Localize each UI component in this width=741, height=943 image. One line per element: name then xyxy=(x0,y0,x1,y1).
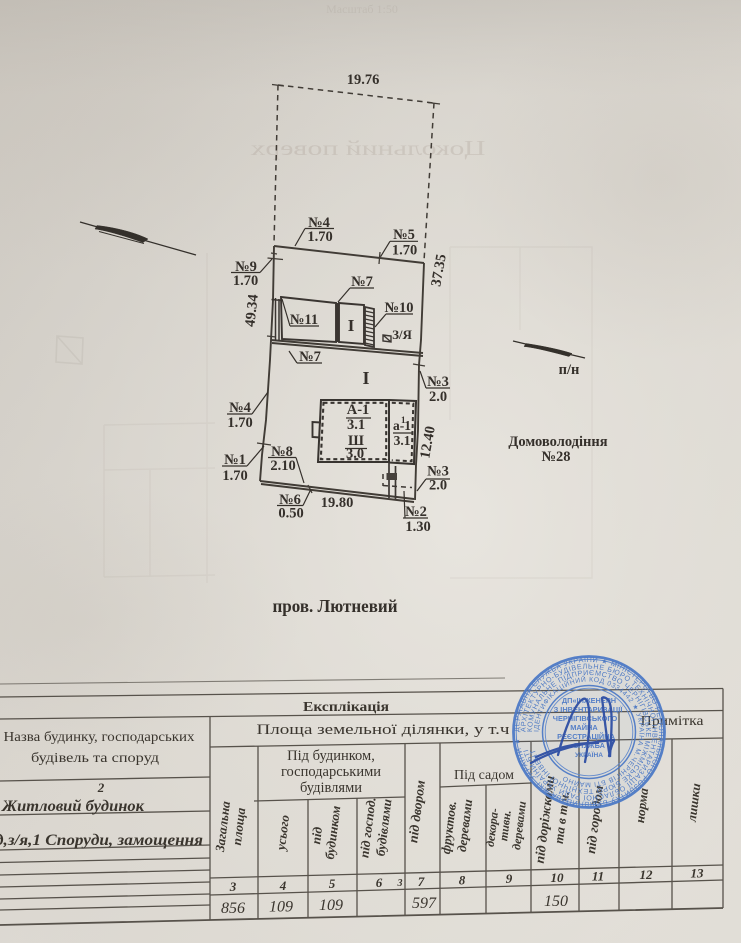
svg-text:13: 13 xyxy=(691,866,705,881)
svg-text:10: 10 xyxy=(551,870,565,885)
svg-text:8: 8 xyxy=(459,873,466,888)
svg-text:Експлікація: Експлікація xyxy=(303,700,389,715)
svg-text:господарськими: господарськими xyxy=(281,764,381,780)
svg-text:Житловий будинок: Житловий будинок xyxy=(1,798,145,815)
svg-text:4: 4 xyxy=(279,878,287,893)
svg-text:п/н: п/н xyxy=(559,362,580,378)
svg-text:1.70: 1.70 xyxy=(222,468,247,484)
svg-text:Цокольний поверх: Цокольний поверх xyxy=(250,136,486,160)
svg-text:1: 1 xyxy=(401,415,406,425)
svg-text:I: I xyxy=(362,368,369,388)
svg-text:3: 3 xyxy=(229,879,237,894)
svg-text:д,з/я,1 Споруди, замощення: д,з/я,1 Споруди, замощення xyxy=(0,832,203,849)
svg-text:А-1: А-1 xyxy=(347,402,370,418)
svg-text:будівель та споруд: будівель та споруд xyxy=(31,751,159,766)
svg-text:1.70: 1.70 xyxy=(392,243,417,259)
svg-text:З/Я: З/Я xyxy=(392,327,412,342)
svg-text:Під садом: Під садом xyxy=(454,768,514,783)
svg-text:2.10: 2.10 xyxy=(270,458,295,474)
svg-text:49.34: 49.34 xyxy=(242,294,261,328)
svg-text:11: 11 xyxy=(592,869,604,884)
svg-text:9: 9 xyxy=(506,871,513,886)
svg-text:12: 12 xyxy=(640,867,654,882)
svg-text:597: 597 xyxy=(412,895,437,912)
svg-text:856: 856 xyxy=(221,900,245,917)
svg-text:будівлями: будівлями xyxy=(300,780,362,796)
svg-text:3.1: 3.1 xyxy=(394,433,411,448)
svg-text:під: під xyxy=(308,825,325,845)
svg-text:пров. Лютневий: пров. Лютневий xyxy=(273,596,398,616)
svg-text:№28: №28 xyxy=(541,449,570,465)
svg-text:ЧЕРНІГІВСЬКОГО: ЧЕРНІГІВСЬКОГО xyxy=(553,714,618,723)
svg-text:Під будинком,: Під будинком, xyxy=(287,748,375,764)
svg-text:109: 109 xyxy=(269,899,293,916)
svg-text:Масштаб 1:50: Масштаб 1:50 xyxy=(326,2,398,16)
svg-text:3.1: 3.1 xyxy=(347,417,365,433)
svg-text:3: 3 xyxy=(397,878,403,889)
svg-text:1.70: 1.70 xyxy=(233,273,258,289)
svg-text:МАЙНА: МАЙНА xyxy=(570,723,598,732)
svg-text:19.80: 19.80 xyxy=(321,495,354,511)
svg-text:I: I xyxy=(348,316,355,335)
svg-text:Назва будинку, господарських: Назва будинку, господарських xyxy=(4,730,195,745)
svg-text:1.30: 1.30 xyxy=(405,519,430,535)
svg-text:Площа земельної ділянки, у т.ч: Площа земельної ділянки, у т.ч xyxy=(257,722,511,738)
svg-text:Домоволодіння: Домоволодіння xyxy=(508,434,607,450)
svg-text:19.76: 19.76 xyxy=(347,72,380,88)
svg-text:2.0: 2.0 xyxy=(429,478,447,494)
svg-text:№5: №5 xyxy=(393,227,415,243)
svg-text:109: 109 xyxy=(319,897,343,914)
svg-text:2: 2 xyxy=(97,780,105,795)
svg-text:2.0: 2.0 xyxy=(429,389,447,405)
svg-text:1.70: 1.70 xyxy=(227,415,252,431)
svg-text:6: 6 xyxy=(376,875,383,890)
svg-text:0.50: 0.50 xyxy=(278,506,303,522)
svg-text:7: 7 xyxy=(418,874,425,889)
svg-text:1.70: 1.70 xyxy=(307,229,332,245)
svg-text:УКРАЇНА: УКРАЇНА xyxy=(575,751,603,759)
svg-text:5: 5 xyxy=(329,876,336,891)
svg-text:150: 150 xyxy=(544,893,568,910)
